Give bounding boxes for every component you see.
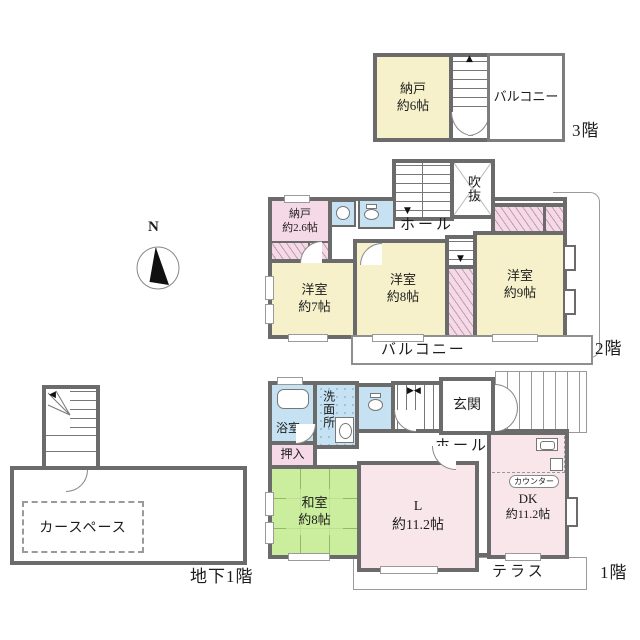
- room-3f-balcony: バルコニー: [487, 53, 565, 142]
- room-2f-void-label: 吹抜: [454, 163, 491, 215]
- compass-needle-icon: [128, 218, 188, 298]
- car-space-label: カースペース: [39, 517, 127, 537]
- stairs-b1-landing: [46, 435, 96, 436]
- stairs-1f: ▶◀: [391, 381, 443, 433]
- toilet-icon: [368, 399, 383, 411]
- stairs-2f-down-arrow-icon: ▼: [404, 207, 411, 216]
- room-1f-japanese: 和室 約8帖: [268, 465, 361, 559]
- window: [288, 553, 330, 561]
- window: [277, 377, 303, 385]
- window: [265, 304, 274, 324]
- room-1f-japanese-label: 和室 約8帖: [286, 489, 343, 535]
- room-3f-balcony-label: バルコニー: [490, 56, 562, 139]
- stairs-2f-divider: [422, 163, 423, 217]
- room-1f-living: L 約11.2帖: [357, 461, 479, 572]
- closet-2f-top: [491, 203, 567, 235]
- car-space: カースペース: [22, 501, 144, 553]
- room-1f-entrance-label: 玄関: [443, 381, 491, 431]
- room-1f-dk: カウンター DK 約11.2帖: [487, 431, 569, 559]
- room-2f-western1-label: 洋室 約7帖: [272, 263, 357, 335]
- stairs-1f-arrow-icon: ▶◀: [407, 387, 421, 396]
- room-3f-storage-label: 納戸 約6帖: [377, 57, 449, 138]
- terrace-label: テラス: [492, 563, 546, 583]
- toilet-1f: [355, 383, 395, 433]
- stairs-b1-landing: [46, 451, 96, 452]
- window: [372, 334, 424, 342]
- room-2f-western3-label: 洋室 約9帖: [477, 235, 563, 335]
- compass: N: [128, 218, 188, 298]
- toilet-2f: [358, 199, 395, 229]
- stairs-2f: ▼: [392, 159, 454, 221]
- hall-2f-label: ホール: [400, 216, 454, 236]
- stairs-b1: ◀: [42, 385, 100, 470]
- room-1f-living-label: L 約11.2帖: [361, 465, 475, 568]
- window: [492, 334, 538, 342]
- floor-label-3f: 3階: [572, 120, 600, 142]
- floor-plan: N 納戸 約6帖 ▲ バルコニー 3階 ▼: [0, 0, 640, 640]
- bathtub-icon: [277, 389, 309, 409]
- sink-icon: [336, 206, 350, 220]
- window: [265, 522, 274, 544]
- window: [288, 334, 328, 342]
- washstand-2f: [330, 200, 356, 227]
- window: [380, 566, 438, 574]
- room-1f-entrance: 玄関: [439, 377, 495, 435]
- closet-divider: [543, 207, 546, 231]
- stairs-3f-up-arrow-icon: ▲: [466, 55, 473, 64]
- room-2f-western3: 洋室 約9帖: [473, 231, 567, 339]
- stairs-3f-treads: [453, 61, 487, 115]
- stairs-2f-lower-down-arrow-icon: ▼: [457, 255, 464, 264]
- room-1f-washroom-label: 洗面所: [320, 390, 336, 429]
- bay-window: [563, 289, 576, 315]
- window: [505, 553, 541, 561]
- closet-1f-oshiire-label: 押入: [272, 445, 313, 465]
- room-1f-dk-label: DK 約11.2帖: [491, 435, 565, 555]
- floor-label-2f: 2階: [595, 338, 623, 360]
- washer-icon: [335, 417, 354, 443]
- window: [284, 195, 310, 203]
- window: [265, 492, 274, 516]
- bay-window: [563, 245, 576, 271]
- bay-window: [565, 497, 578, 527]
- floor-label-b1: 地下1階: [190, 566, 254, 588]
- room-2f-western1: 洋室 約7帖: [268, 259, 361, 339]
- room-2f-void: 吹抜: [450, 159, 495, 219]
- room-1f-washroom: 洗面所: [313, 381, 359, 449]
- toilet-tank-icon: [370, 393, 381, 398]
- room-2f-balcony-label: バルコニー: [381, 341, 466, 361]
- floor-label-1f: 1階: [600, 562, 628, 584]
- stairs-b1-arrow-icon: ◀: [49, 391, 56, 400]
- room-3f-storage: 納戸 約6帖: [373, 53, 453, 142]
- toilet-icon: [364, 209, 379, 220]
- window: [265, 276, 274, 300]
- toilet-tank-icon: [366, 204, 377, 209]
